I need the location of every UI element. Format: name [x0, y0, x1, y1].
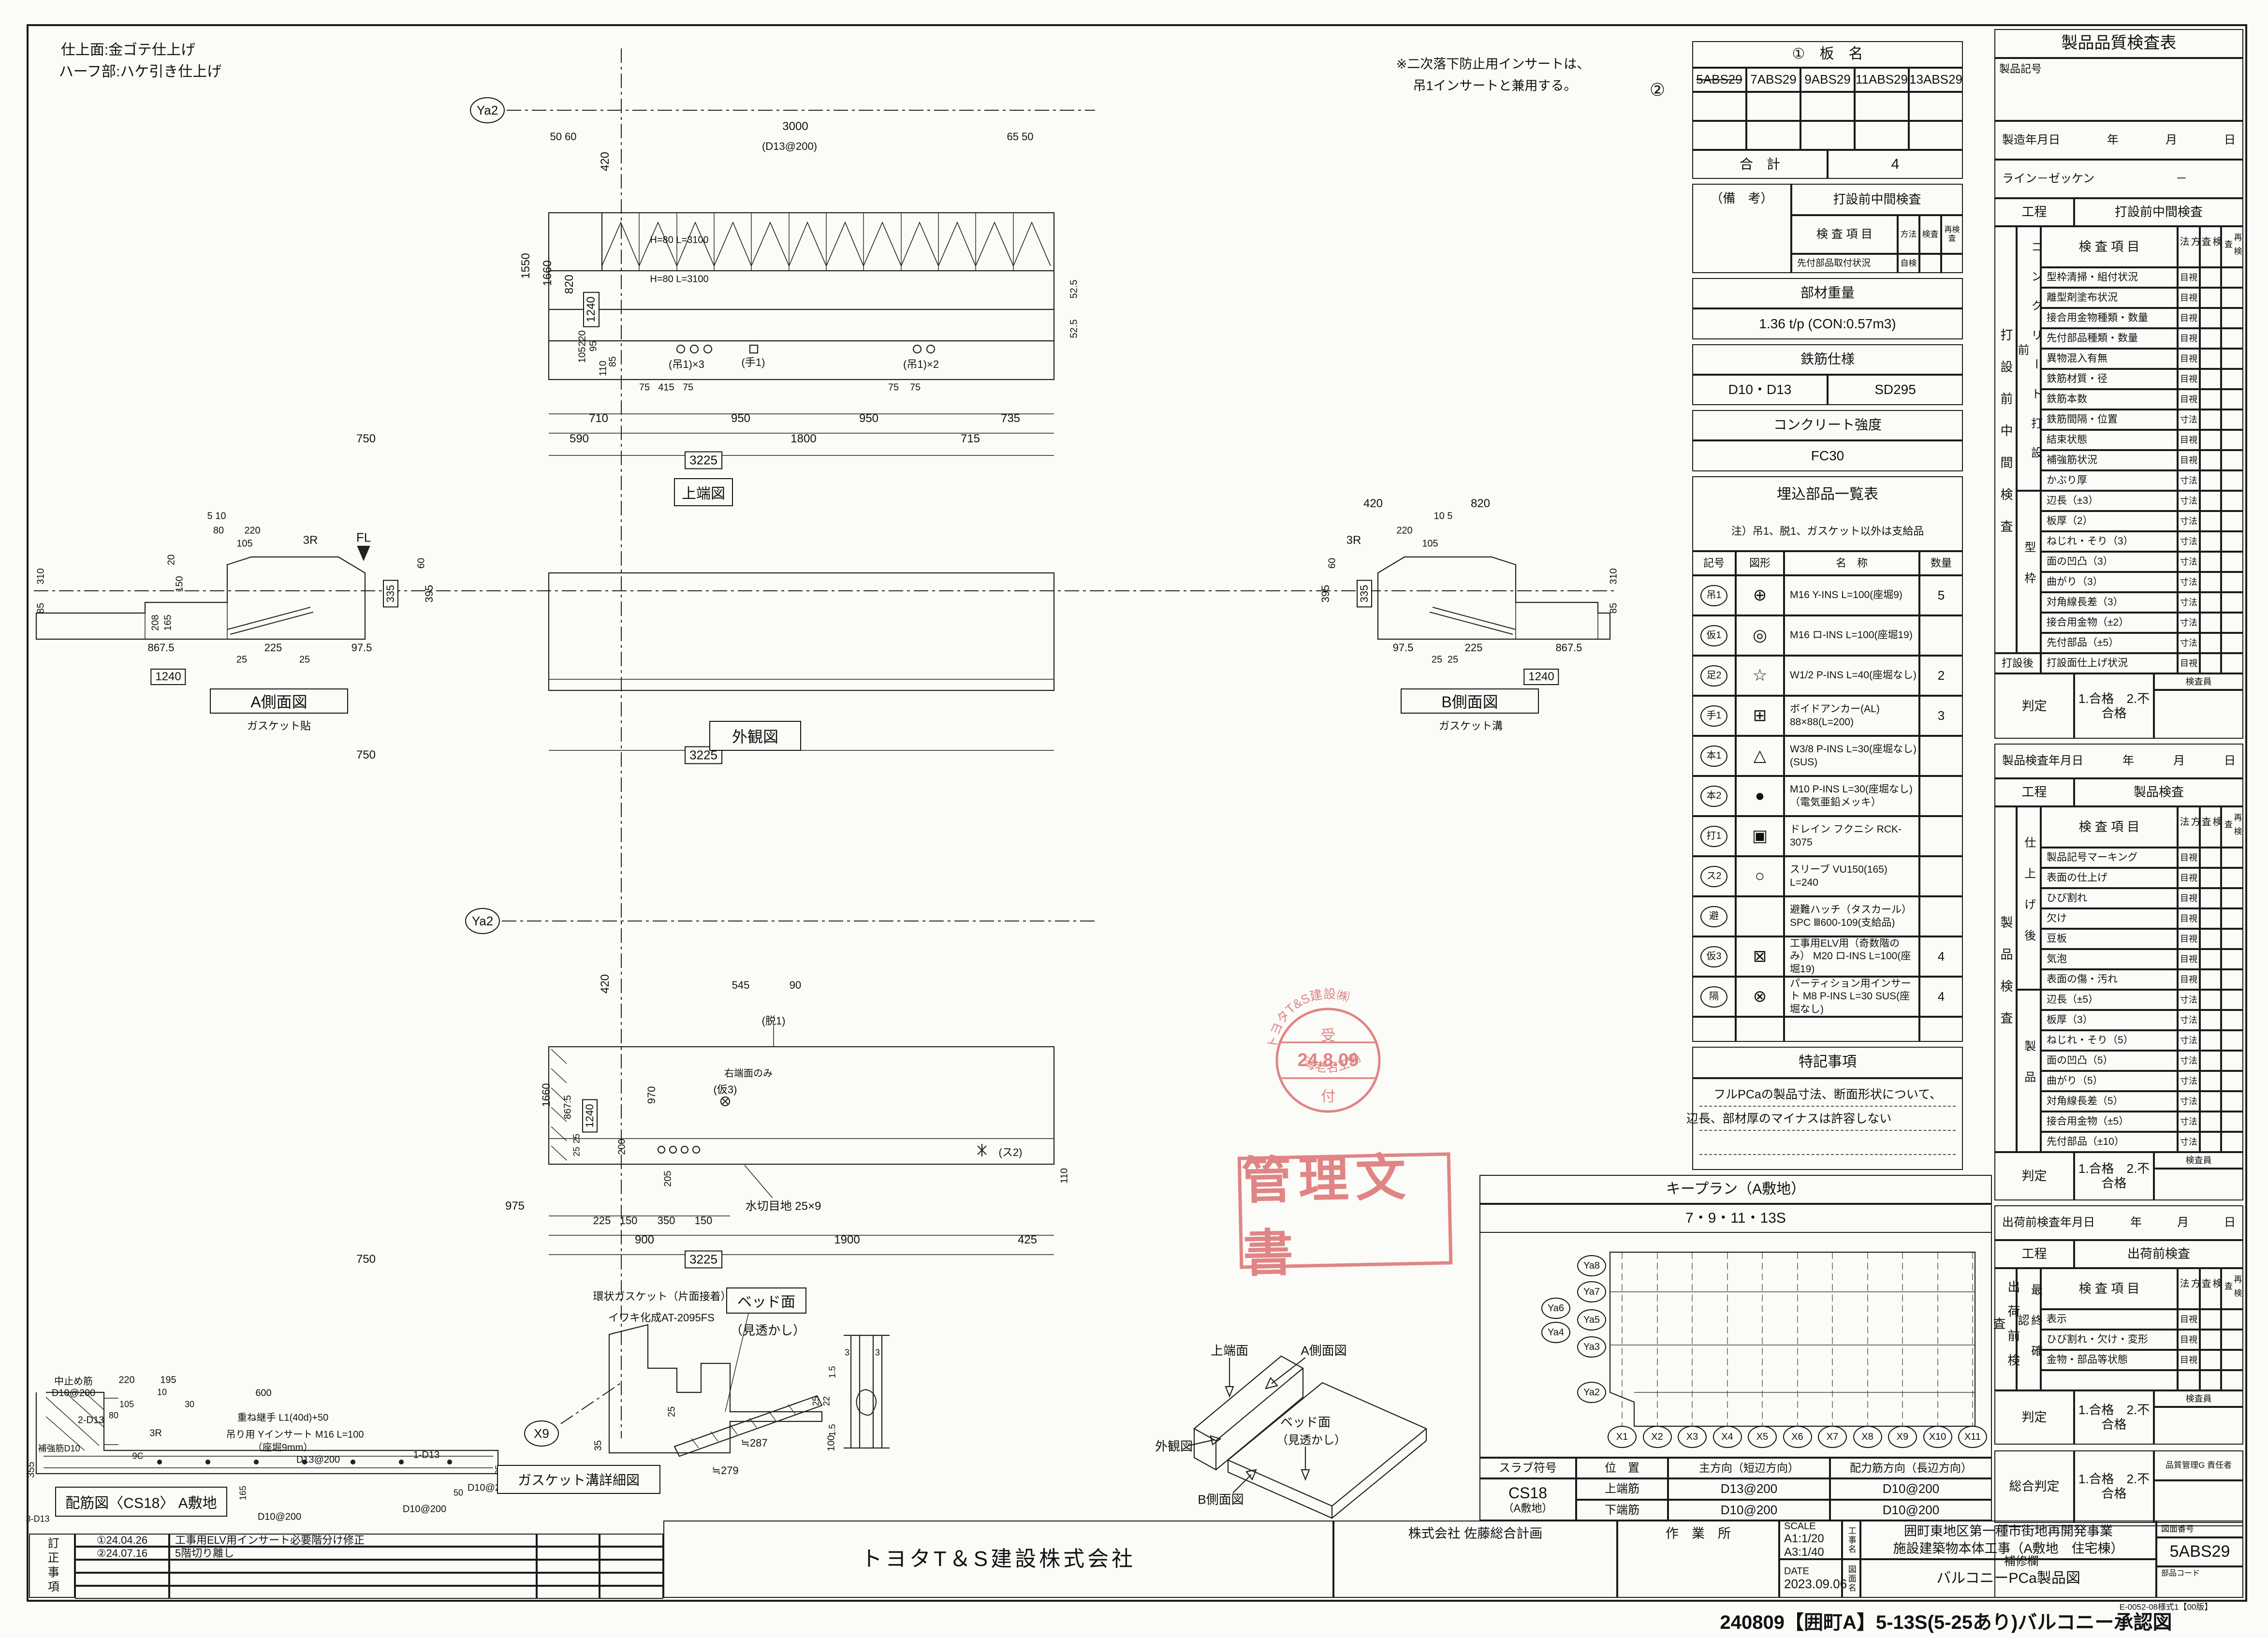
- inspection-item: 豆板: [2041, 929, 2178, 949]
- section-date-row: 製品検査年月日年月日: [1994, 744, 2243, 778]
- view-label: 外観図: [709, 721, 801, 751]
- part-qty-cell: [1919, 816, 1963, 856]
- inspection-recheck: [2221, 430, 2243, 450]
- inspection-method: [2178, 1370, 2200, 1390]
- slab-row1-pos: 上端筋: [1576, 1478, 1668, 1500]
- parts-empty-name: [1784, 1017, 1919, 1042]
- inspection-recheck: [2221, 1091, 2243, 1111]
- inspection-method: 目視: [2178, 389, 2200, 409]
- inspection-recheck: [2221, 389, 2243, 409]
- parts-title: 埋込部品一覧表: [1692, 476, 1963, 512]
- dimension-label: 205: [663, 1170, 674, 1186]
- view-label: A側面図: [210, 688, 348, 714]
- dimension-label: 310: [1609, 568, 1620, 584]
- item-header: 検 査 項 目: [2041, 1268, 2178, 1309]
- dimension-label: 1900: [834, 1233, 860, 1247]
- part-qty-cell: [1919, 896, 1963, 936]
- revision-extra1-cell: [537, 1560, 600, 1573]
- remarks-label: （備 考）: [1692, 184, 1791, 273]
- revision-label: 訂正事項: [29, 1534, 75, 1598]
- dimension-label: ※二次落下防止用インサートは、: [1396, 54, 1590, 73]
- view-label: 配筋図〈CS18〉 A敷地: [55, 1487, 227, 1517]
- part-mark: 仮1: [1700, 625, 1727, 646]
- recheck-header-text: 再検査: [2223, 807, 2241, 847]
- part-mark-cell: 仮3: [1692, 936, 1736, 977]
- inspection-item: 曲がり（3）: [2041, 572, 2178, 592]
- slab-code: CS18（A敷地）: [1479, 1478, 1576, 1521]
- method-header-text: 方法: [2178, 807, 2200, 847]
- dimension-label: 867.5: [147, 642, 174, 654]
- part-shape-icon: ⊕: [1736, 575, 1784, 615]
- part-name-cell: ボイドアンカー(AL) 88×88(L=200): [1784, 696, 1919, 736]
- inspection-check: [2200, 990, 2221, 1010]
- dimension-label: 420: [599, 152, 612, 171]
- scale-cell: SCALE A1:1/20 A3:1/40: [1779, 1521, 1842, 1559]
- dimension-label: 195: [160, 1375, 176, 1386]
- revision-desc-cell: 5階切り離し: [169, 1547, 537, 1560]
- inspection-method: 寸法: [2178, 552, 2200, 572]
- stage-strip: 打設前中間検査: [1994, 226, 2017, 653]
- revision-extra1-cell: [537, 1573, 600, 1586]
- inspection-item: 先付部品種類・数量: [2041, 328, 2178, 349]
- inspection-method: 目視: [2178, 929, 2200, 949]
- mfg-date-row: 製造年月日年月日: [1994, 121, 2243, 160]
- dimension-label: 150: [620, 1214, 638, 1227]
- parts-col-qty: 数量: [1919, 551, 1963, 575]
- inspection-recheck: [2221, 1111, 2243, 1132]
- dimension-label: D10@200: [52, 1388, 95, 1399]
- part-mark-cell: 打1: [1692, 816, 1736, 856]
- dimension-label: (吊1)×3: [669, 356, 704, 371]
- inspection-method: 寸法: [2178, 613, 2200, 633]
- dwg-no-label-cell: 図面番号: [2156, 1521, 2243, 1537]
- inspection-item: 先付部品（±5）: [2041, 633, 2178, 653]
- revision-desc-cell: [169, 1573, 537, 1586]
- dimension-label: 95: [588, 341, 600, 351]
- item-header: 検 査 項 目: [2041, 806, 2178, 848]
- slab-row1-main: D13@200: [1668, 1478, 1830, 1500]
- inspection-check: [2200, 653, 2221, 673]
- group-strip-text: 仕上げ後: [2022, 836, 2035, 960]
- inspection-check: [2200, 409, 2221, 430]
- dimension-label: 100: [826, 1435, 837, 1451]
- inspection-recheck: [2221, 929, 2243, 949]
- line-row: ライン－ゼッケン－: [1994, 160, 2243, 198]
- inspection-recheck: [2221, 990, 2243, 1010]
- remarks-process: 打設前中間検査: [1791, 184, 1963, 215]
- inspection-method: 寸法: [2178, 633, 2200, 653]
- dwg-no-cell: 5ABS29: [2156, 1537, 2243, 1566]
- dimension-label: 420: [599, 974, 612, 994]
- inspection-check: [2200, 572, 2221, 592]
- part-mark: 避: [1700, 906, 1727, 927]
- arrow-top-face: [1226, 1358, 1233, 1396]
- plate-name: 13ABS29: [1909, 73, 1962, 87]
- quality-inspection-table: 製品品質検査表製品記号製造年月日年月日ライン－ゼッケン－工程打設前中間検査打設前…: [1994, 29, 2243, 1598]
- revision-desc-cell: [169, 1586, 537, 1599]
- inspection-method: 目視: [2178, 450, 2200, 470]
- inspection-item: 板厚（2）: [2041, 511, 2178, 531]
- inspection-item: 面の凹凸（3）: [2041, 552, 2178, 572]
- final-inspector-label: 品質管理G 責任者: [2154, 1450, 2243, 1480]
- revision-extra2-cell: [600, 1573, 663, 1586]
- dimension-label: (吊1)×2: [903, 356, 939, 371]
- dimension-label: 415: [658, 382, 674, 394]
- plate-name: 11ABS29: [1856, 73, 1908, 87]
- inspection-recheck: [2221, 1309, 2243, 1330]
- method-header: 方法: [2178, 226, 2200, 267]
- dimension-label: D10@200: [258, 1512, 301, 1523]
- dimension-label: 3000: [782, 120, 808, 133]
- check-header-text: 検査: [2199, 227, 2222, 266]
- inspection-method: 寸法: [2178, 409, 2200, 430]
- plate-empty-cell: [1855, 121, 1909, 150]
- inspection-method: 目視: [2178, 308, 2200, 328]
- plate-empty-cell: [1746, 92, 1800, 121]
- dimension-label: (手1): [742, 354, 765, 369]
- scale-a3: A3:1/40: [1784, 1546, 1824, 1559]
- dimension-label: 85: [1609, 603, 1620, 614]
- inspection-check: [2200, 1091, 2221, 1111]
- method-header: 方法: [2178, 1268, 2200, 1309]
- inspection-method: 寸法: [2178, 470, 2200, 491]
- dimension-label: 820: [563, 275, 576, 294]
- dimension-label: 1240: [582, 1099, 598, 1133]
- remarks-row-recheck: [1941, 254, 1963, 273]
- group-strip-text: 最終確認: [2015, 1269, 2042, 1389]
- plate-total-label: 合 計: [1692, 150, 1828, 179]
- part-mark-cell: 本1: [1692, 736, 1736, 776]
- dimension-label: 25: [236, 655, 247, 666]
- judge-label: 判定: [1994, 673, 2074, 739]
- rebar-grade: SD295: [1828, 375, 1963, 405]
- inspection-method: 寸法: [2178, 572, 2200, 592]
- plate-empty-cell: [1692, 121, 1746, 150]
- method-header-text: 方法: [2178, 227, 2200, 266]
- dimension-label: 105: [1422, 539, 1438, 550]
- inspection-method: 寸法: [2178, 1051, 2200, 1071]
- keyplan-x-bubble: X2: [1643, 1426, 1672, 1448]
- inspection-check: [2200, 1111, 2221, 1132]
- inspection-recheck: [2221, 949, 2243, 969]
- part-qty-cell: 4: [1919, 936, 1963, 977]
- grid-bubble: Ya2: [470, 97, 505, 123]
- arrow-bed-face: [1302, 1447, 1309, 1479]
- drawing-sheet: トヨタT&S建設㈱ 海老名工場 受 24.8.09 付 管理文書 ① 板 名 合…: [0, 0, 2268, 1638]
- approval-note: 240809【囲町A】5-13S(5-25あり)バルコニー承認図: [1720, 1607, 2172, 1635]
- dimension-label: 590: [570, 432, 589, 446]
- dimension-label: 820: [1471, 497, 1490, 511]
- inspection-item: 接合用金物種類・数量: [2041, 308, 2178, 328]
- dimension-label: 225: [1465, 642, 1483, 654]
- dimension-label: 735: [1001, 412, 1020, 425]
- dimension-label: D13@200: [296, 1455, 340, 1466]
- inspection-recheck: [2221, 267, 2243, 288]
- inspection-check: [2200, 1030, 2221, 1051]
- plate-name: 5ABS29: [1696, 73, 1742, 87]
- inspector-label: 検査員: [2154, 1390, 2243, 1407]
- dimension-label: ハーフ部:ハケ引き仕上げ: [59, 59, 222, 81]
- revision-extra2-cell: [600, 1547, 663, 1560]
- project-label-cell: 工事名: [1842, 1521, 1860, 1559]
- parts-empty-shape: [1736, 1017, 1784, 1042]
- inspection-recheck: [2221, 491, 2243, 511]
- dimension-label: 1800: [790, 432, 816, 446]
- dimension-label: 上端面: [1211, 1341, 1248, 1359]
- remarks-row-check: [1919, 254, 1941, 273]
- keyplan-y-bubble: Ya8: [1577, 1255, 1606, 1276]
- keyplan-area: [1479, 1233, 1992, 1458]
- special-line1: フルPCaの製品寸法、断面形状について、: [1713, 1085, 1942, 1102]
- inspection-method: 寸法: [2178, 531, 2200, 552]
- part-mark: 本2: [1700, 786, 1727, 807]
- keyplan-x-bubble: X6: [1783, 1426, 1812, 1448]
- dimension-label: 補強筋D10: [38, 1442, 80, 1454]
- view-label: B側面図: [1401, 688, 1539, 714]
- inspection-recheck: [2221, 328, 2243, 349]
- keyplan-x-bubble: X3: [1678, 1426, 1707, 1448]
- inspector-sign: [2154, 1169, 2243, 1200]
- dimension-label: 25: [299, 655, 310, 666]
- inspection-check: [2200, 491, 2221, 511]
- inspection-item: 表面の仕上げ: [2041, 868, 2178, 888]
- part-shape-icon: ◎: [1736, 615, 1784, 656]
- inspection-method: 目視: [2178, 349, 2200, 369]
- inspection-recheck: [2221, 308, 2243, 328]
- special-title: 特記事項: [1692, 1047, 1963, 1078]
- inspection-item: 鉄筋本数: [2041, 389, 2178, 409]
- inspection-method: 寸法: [2178, 1111, 2200, 1132]
- dimension-label: 85: [608, 356, 619, 367]
- dimension-label: 165: [163, 614, 174, 630]
- plate-name: 9ABS29: [1804, 73, 1850, 87]
- inspection-recheck: [2221, 1350, 2243, 1370]
- judge-value: 1.合格 2.不合格: [2074, 673, 2154, 739]
- keyplan-x-bubble: X1: [1608, 1426, 1637, 1448]
- dimension-label: 3R: [149, 1428, 162, 1439]
- inspection-method: 寸法: [2178, 1030, 2200, 1051]
- dimension-label: H=80 L=3100: [650, 235, 708, 246]
- inspection-item: 製品記号マーキング: [2041, 848, 2178, 868]
- part-qty-cell: 2: [1919, 656, 1963, 696]
- stamp-receive: 受: [1321, 1028, 1335, 1044]
- inspection-item: 辺長（±3）: [2041, 491, 2178, 511]
- dimension-label: 3225: [685, 1251, 722, 1269]
- inspection-item: 表示: [2041, 1309, 2178, 1330]
- dimension-label: 110: [1059, 1168, 1070, 1184]
- inspector-label: 検査員: [2154, 1152, 2243, 1169]
- inspection-item: ひび割れ: [2041, 888, 2178, 908]
- plate-name-cell: 11ABS29: [1855, 68, 1909, 92]
- keyplan-y-bubble: Ya7: [1577, 1281, 1606, 1302]
- group-strip: 製品: [2017, 990, 2041, 1152]
- dimension-label: 右端面のみ: [724, 1066, 773, 1080]
- keyplan-y-bubble: Ya4: [1541, 1322, 1570, 1343]
- dimension-label: 975: [505, 1199, 525, 1213]
- inspection-method: 目視: [2178, 267, 2200, 288]
- dimension-label: 750: [356, 748, 376, 762]
- dimension-label: 20: [166, 555, 177, 565]
- inspection-check: [2200, 1330, 2221, 1350]
- dimension-label: 1.5: [828, 1424, 838, 1436]
- judge-value: 1.合格 2.不合格: [2074, 1390, 2154, 1445]
- process-label: 工程: [1994, 198, 2074, 226]
- inspection-recheck: [2221, 1330, 2243, 1350]
- revision-date-cell: ②24.07.16: [75, 1547, 169, 1560]
- slab-row1-dist: D10@200: [1830, 1478, 1992, 1500]
- site-office-cell: 作 業 所: [1617, 1521, 1779, 1598]
- dimension-label: (仮3): [714, 1081, 737, 1097]
- dimension-label: 52.5: [1069, 280, 1080, 299]
- part-mark-cell: 本2: [1692, 776, 1736, 816]
- dimension-label: 355: [26, 1462, 37, 1477]
- inspection-check: [2200, 848, 2221, 868]
- parts-col-name: 名 称: [1784, 551, 1919, 575]
- dimension-label: 75: [910, 382, 921, 394]
- inspection-check: [2200, 868, 2221, 888]
- dimension-label: 25: [667, 1406, 678, 1417]
- dimension-label: 60: [1327, 558, 1338, 569]
- keyplan-y-bubble: Ya2: [1577, 1382, 1606, 1403]
- dimension-label: 150: [175, 576, 186, 592]
- inspection-item: 離型剤塗布状況: [2041, 288, 2178, 308]
- contractor-cell: トヨタT＆S建設株式会社: [663, 1521, 1333, 1598]
- sleeve-star: [978, 1144, 986, 1156]
- part-name-cell: パーティション用インサート M8 P-INS L=30 SUS(座堀なし): [1784, 977, 1919, 1017]
- part-name-cell: M10 P-INS L=30(座堀なし)（電気亜鉛メッキ）: [1784, 776, 1919, 816]
- inspection-recheck: [2221, 349, 2243, 369]
- recheck-header: 再検査: [2221, 806, 2243, 848]
- inspection-item: ひび割れ・欠け・変形: [2041, 1330, 2178, 1350]
- inspection-item: 先付部品（±10）: [2041, 1132, 2178, 1152]
- dimension-label: 97.5: [351, 642, 372, 654]
- inspection-item: 曲がり（5）: [2041, 1071, 2178, 1091]
- product-code-row: 製品記号: [1994, 58, 2243, 121]
- date-cell: DATE 2023.09.06: [1779, 1559, 1842, 1598]
- date-label: DATE: [1784, 1566, 1809, 1577]
- revision-extra1-cell: [537, 1586, 600, 1599]
- inspection-item: 対角線長差（5）: [2041, 1091, 2178, 1111]
- dimension-label: ベッド面: [1280, 1413, 1331, 1431]
- inspection-check: [2200, 369, 2221, 389]
- keyplan-x-bubble: X10: [1923, 1426, 1952, 1448]
- iso-deck: [1228, 1383, 1426, 1518]
- part-qty-cell: [1919, 776, 1963, 816]
- part-shape-icon: [1736, 896, 1784, 936]
- remarks-row-item: 先付部品取付状況: [1791, 254, 1898, 273]
- group-strip: コンクリート打設前: [2017, 226, 2041, 491]
- project-line1: 囲町東地区第一種市街地再開発事業: [1904, 1522, 2113, 1540]
- weight-value: 1.36 t/p (CON:0.57m3): [1692, 308, 1963, 339]
- inspection-recheck: [2221, 1010, 2243, 1030]
- final-judge-value: 1.合格 2.不合格: [2074, 1450, 2154, 1523]
- dimension-label: 208: [150, 614, 161, 630]
- dimension-label: 75: [639, 382, 650, 394]
- inspection-recheck: [2221, 969, 2243, 990]
- dimension-label: 1550: [519, 253, 533, 278]
- item-header: 検 査 項 目: [2041, 226, 2178, 267]
- plate-name-cell: 13ABS29: [1909, 68, 1963, 92]
- dimension-label: 60: [416, 558, 427, 569]
- part-shape-icon: ⊗: [1736, 977, 1784, 1017]
- keyplan-x-bubble: X7: [1818, 1426, 1847, 1448]
- inspection-check: [2200, 888, 2221, 908]
- grid-bubble: X9: [524, 1420, 559, 1447]
- inspection-recheck: [2221, 653, 2243, 673]
- dimension-label: 吊り用 Yインサート M16 L=100: [226, 1427, 364, 1441]
- part-name-cell: スリーブ VU150(165) L=240: [1784, 856, 1919, 896]
- stage-strip: 製品検査: [1994, 806, 2017, 1152]
- slab-col1: スラブ符号: [1479, 1458, 1576, 1478]
- dimension-label: 970: [645, 1086, 658, 1104]
- dimension-label: ≒279: [712, 1464, 738, 1477]
- part-name-cell: M16 ロ-INS L=100(座堀19): [1784, 615, 1919, 656]
- inspection-method: 寸法: [2178, 1010, 2200, 1030]
- parts-empty-mark: [1692, 1017, 1736, 1042]
- remarks-col-check: 検査: [1919, 215, 1941, 254]
- inspection-recheck: [2221, 888, 2243, 908]
- dimension-label: 950: [859, 412, 878, 425]
- dimension-label: 25: [1448, 655, 1458, 666]
- judge-label: 判定: [1994, 1390, 2074, 1445]
- parts-col-mark: 記号: [1692, 551, 1736, 575]
- stage-strip-text: 製品検査: [1998, 916, 2013, 1043]
- dimension-label: 1660: [541, 260, 555, 286]
- dimension-label: 10 5: [1434, 511, 1453, 522]
- part-qty-cell: 3: [1919, 696, 1963, 736]
- dimension-label: 3-D13: [26, 1514, 49, 1524]
- dimension-label: 750: [356, 432, 376, 446]
- part-shape-icon: ⊞: [1736, 696, 1784, 736]
- inspection-check: [2200, 349, 2221, 369]
- keyplan-x-bubble: X4: [1713, 1426, 1742, 1448]
- dimension-label: 65 50: [1007, 131, 1033, 143]
- part-mark: 仮3: [1700, 946, 1727, 967]
- dimension-label: (ス2): [999, 1144, 1023, 1159]
- group-strip: 型枠: [2017, 491, 2041, 653]
- dimension-label: ガスケット溝: [1439, 717, 1503, 733]
- dimension-label: (脱1): [762, 1012, 786, 1028]
- inspector-sign: [2154, 1407, 2243, 1445]
- view-label: 上端図: [674, 478, 733, 506]
- part-name-cell: 工事用ELV用（奇数階のみ） M20 ロ-INS L=100(座堀19): [1784, 936, 1919, 977]
- dimension-label: 1.5: [828, 1366, 838, 1378]
- dimension-label: (D13@200): [762, 140, 817, 153]
- inspection-item: 表面の傷・汚れ: [2041, 969, 2178, 990]
- keyplan-floors: 7・9・11・13S: [1479, 1204, 1992, 1233]
- plate-name-cell: 7ABS29: [1746, 68, 1800, 92]
- plate-name: 7ABS29: [1750, 73, 1796, 87]
- dimension-label: 715: [961, 432, 980, 446]
- dimension-label: 3225: [685, 452, 722, 469]
- dimension-label: 水切目地 25×9: [746, 1197, 821, 1214]
- inspection-check: [2200, 389, 2221, 409]
- dimension-label: 545: [732, 979, 750, 992]
- remarks-col-recheck: 再検査: [1941, 215, 1963, 254]
- inspection-recheck: [2221, 848, 2243, 868]
- inspection-check: [2200, 511, 2221, 531]
- plate-empty-cell: [1909, 121, 1963, 150]
- part-name-cell: M16 Y-INS L=100(座堀9): [1784, 575, 1919, 615]
- wide-group-label: 打設後: [1994, 653, 2041, 673]
- inspection-recheck: [2221, 531, 2243, 552]
- dwg-name-cell: バルコニーPCa製品図: [1860, 1559, 2156, 1598]
- inspection-recheck: [2221, 908, 2243, 929]
- inspection-check: [2200, 1309, 2221, 1330]
- inspection-method: 目視: [2178, 328, 2200, 349]
- part-name-cell: W3/8 P-INS L=30(座堀なし) (SUS): [1784, 736, 1919, 776]
- recheck-header: 再検査: [2221, 226, 2243, 267]
